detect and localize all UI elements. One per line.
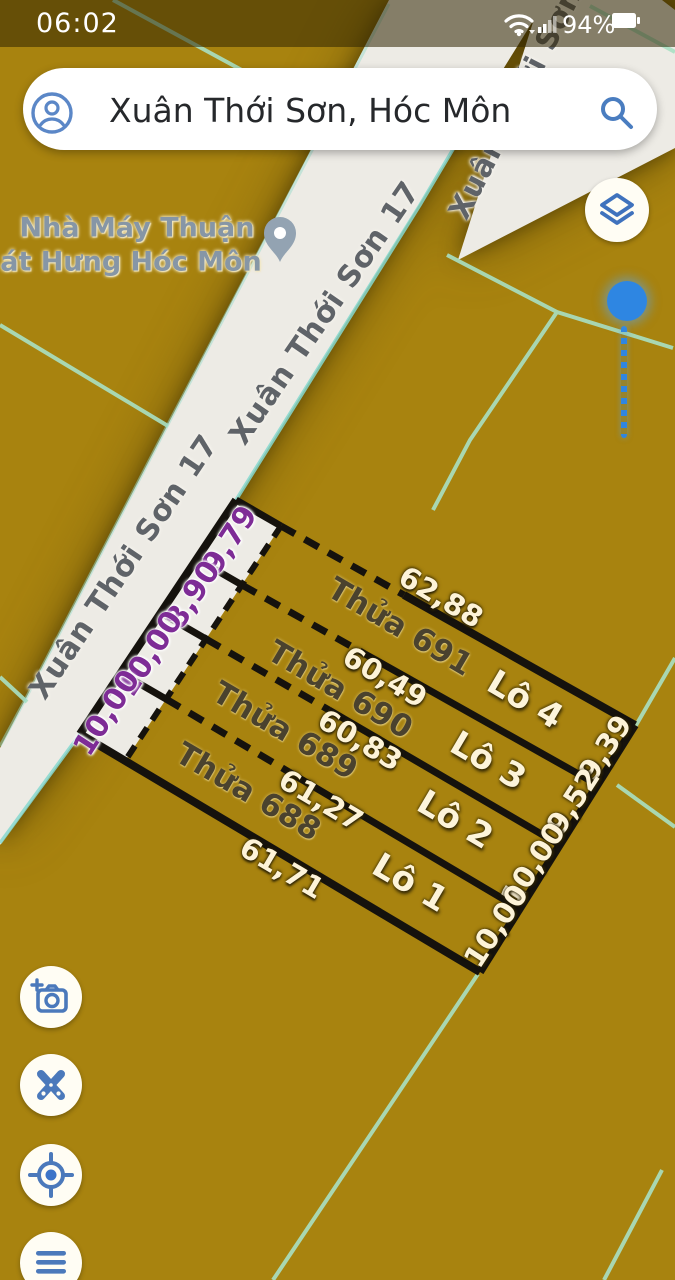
my-location-button[interactable] bbox=[20, 1144, 82, 1206]
clock-text: 06:02 bbox=[36, 8, 119, 39]
status-bar: 06:02 94% bbox=[0, 0, 675, 47]
battery-percent-text: 94% bbox=[562, 11, 615, 39]
battery-icon bbox=[612, 13, 641, 29]
wifi-icon bbox=[503, 11, 536, 37]
search-icon[interactable] bbox=[595, 91, 637, 133]
camera-plus-icon bbox=[30, 977, 72, 1017]
layers-button[interactable] bbox=[585, 178, 649, 242]
search-bar[interactable]: Xuân Thới Sơn, Hóc Môn bbox=[23, 68, 657, 150]
add-photo-camera-button[interactable] bbox=[20, 966, 82, 1028]
hamburger-menu-icon bbox=[31, 1243, 71, 1280]
parcel-outline-layer bbox=[0, 0, 675, 1280]
place-pin-icon[interactable] bbox=[262, 216, 298, 264]
scissors-measure-button[interactable] bbox=[20, 1054, 82, 1116]
account-icon[interactable] bbox=[30, 91, 74, 135]
layers-icon bbox=[595, 188, 639, 232]
maps-app-screen: Nhà Máy Thuận át Hưng Hóc Môn Xuân Thới … bbox=[0, 0, 675, 1280]
search-input[interactable]: Xuân Thới Sơn, Hóc Môn bbox=[109, 91, 511, 130]
map-marker-dot[interactable] bbox=[607, 281, 647, 321]
marker-dotted-tail bbox=[621, 326, 627, 438]
locate-crosshair-icon bbox=[28, 1152, 74, 1198]
scissors-icon bbox=[31, 1065, 71, 1105]
cellular-signal-icon bbox=[538, 15, 558, 34]
poi-label-line1[interactable]: Nhà Máy Thuận bbox=[20, 213, 255, 244]
poi-label-line2[interactable]: át Hưng Hóc Môn bbox=[0, 247, 261, 278]
